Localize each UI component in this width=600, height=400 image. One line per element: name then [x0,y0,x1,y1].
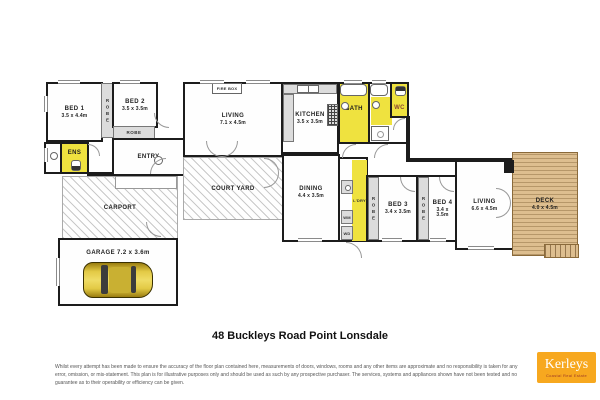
robe-label: ROBE [126,130,141,135]
car-roof [109,267,131,293]
washing-machine: WM [341,210,353,224]
dining-label: DINING4.4 x 3.5m [284,156,338,240]
wd-label: WD [343,231,350,236]
room-laundry: L'DRY WM WD [338,157,368,242]
hall-east-wall [406,116,410,162]
floor-plan-page: BED 13.5 x 4.4m ROBE BED 23.5 x 3.5m ROB… [0,0,600,400]
window [44,96,48,112]
kitchen-bench-side [283,94,294,142]
room-wc: WC [390,82,409,118]
basin2-icon [372,101,380,109]
robe-label: ROBE [105,98,110,124]
entry-porch [115,176,177,189]
bath-door-arc [342,144,356,158]
robe-bed3: ROBE [368,177,379,240]
bathroom2-door-arc [374,144,388,158]
window [246,80,270,84]
kitchen-sink-icon [297,85,319,93]
wm-label: WM [343,215,351,220]
disclaimer-text: Whilst every attempt has been made to en… [55,363,525,387]
entry-label: ENTRY [114,140,183,174]
dryer: WD [341,226,353,240]
room-entry: ENTRY [112,138,185,176]
room-dining: DINING4.4 x 3.5m [282,154,340,242]
bed2-label: BED 23.5 x 3.5m [114,84,156,126]
car-windshield [101,265,108,294]
fire-box-label: FIRE BOX [217,86,238,91]
window [200,80,224,84]
deck: DECK4.0 x 4.5m [512,152,578,256]
cooktop-icon [327,104,338,126]
deck-threshold [504,160,514,173]
bathtub2-icon [370,84,388,96]
wc-toilet-icon [395,86,406,96]
shower-icon [50,152,58,160]
laundry-label: L'DRY [352,160,367,241]
agency-logo: Kerleys Coastal Real Estate [537,352,596,383]
car-icon [83,262,153,298]
window [44,148,48,162]
deck-steps [544,244,579,258]
window [468,246,494,250]
toilet-icon [71,160,81,171]
bath-basin-icon [341,102,349,110]
window [382,238,402,242]
robe-label: ROBE [421,196,426,222]
window [430,238,446,242]
bathtub-icon [340,84,367,96]
room-ens: ENS [60,142,89,174]
deck-label: DECK4.0 x 4.5m [513,153,577,255]
laundry-floor: L'DRY [352,160,367,241]
robe-label: ROBE [371,196,376,222]
window [58,80,80,84]
page-title: 48 Buckleys Road Point Lonsdale [0,330,600,342]
window [120,80,140,84]
laundry-exit-door-arc [346,242,362,258]
shower2-icon [371,126,389,141]
window [56,258,60,286]
window [298,238,322,242]
bed1-label: BED 13.5 x 4.4m [48,84,101,140]
laundry-trough [341,180,353,194]
window [344,80,362,84]
room-bed2: BED 23.5 x 3.5m [112,82,158,128]
fire-box: FIRE BOX [212,83,242,94]
window [372,80,386,84]
ens-door-arc [88,144,100,156]
car-rear-window [131,266,136,293]
agency-logo-name: Kerleys [545,358,589,372]
robe-bed4: ROBE [418,177,429,240]
room-bed1: BED 13.5 x 4.4m [46,82,103,142]
agency-logo-tagline: Coastal Real Estate [546,373,587,378]
